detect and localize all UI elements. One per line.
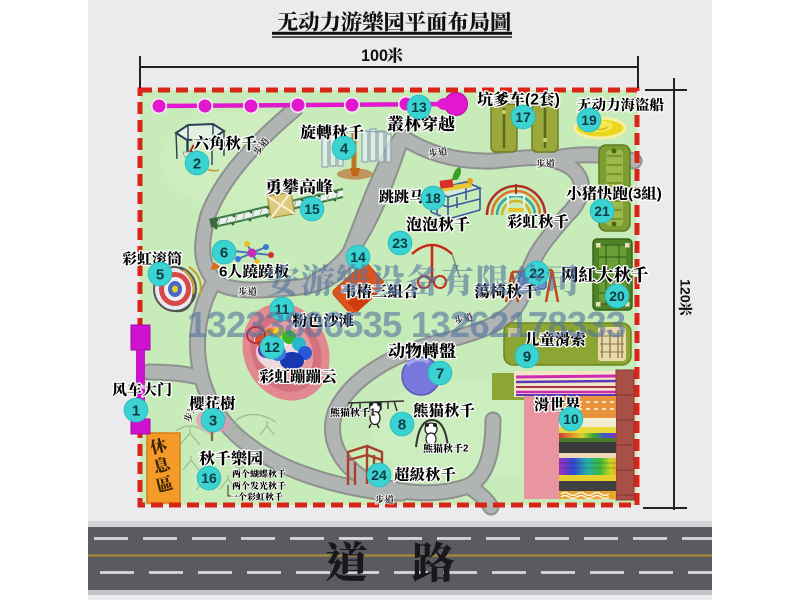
svg-text:9: 9 <box>523 348 531 365</box>
svg-text:18: 18 <box>425 190 441 206</box>
svg-text:2: 2 <box>193 155 201 172</box>
svg-text:13233806535 13262178333: 13233806535 13262178333 <box>187 304 625 345</box>
svg-text:13: 13 <box>411 99 427 115</box>
svg-text:): ) <box>657 186 662 203</box>
svg-text:6: 6 <box>219 264 227 281</box>
svg-text:17: 17 <box>515 109 531 125</box>
svg-text:4: 4 <box>340 140 349 157</box>
svg-text:5: 5 <box>156 266 164 283</box>
svg-text:15: 15 <box>304 201 320 217</box>
svg-text:16: 16 <box>201 470 217 486</box>
svg-text:): ) <box>555 92 560 109</box>
svg-text:8: 8 <box>398 416 406 433</box>
svg-text:1: 1 <box>370 408 376 419</box>
svg-text:6: 6 <box>220 244 228 261</box>
svg-text:10: 10 <box>563 411 579 427</box>
svg-text:3: 3 <box>209 412 217 429</box>
svg-text:24: 24 <box>371 467 387 483</box>
svg-text:19: 19 <box>581 112 597 128</box>
svg-text:120: 120 <box>677 279 693 303</box>
svg-text:1: 1 <box>132 402 140 419</box>
svg-text:2: 2 <box>463 444 469 455</box>
svg-text:14: 14 <box>350 249 366 265</box>
svg-text:20: 20 <box>609 288 625 304</box>
svg-text:7: 7 <box>436 365 444 382</box>
svg-text:21: 21 <box>594 203 610 219</box>
svg-text:(3: (3 <box>628 186 642 203</box>
svg-text:23: 23 <box>392 235 408 251</box>
svg-text:100: 100 <box>361 47 388 65</box>
